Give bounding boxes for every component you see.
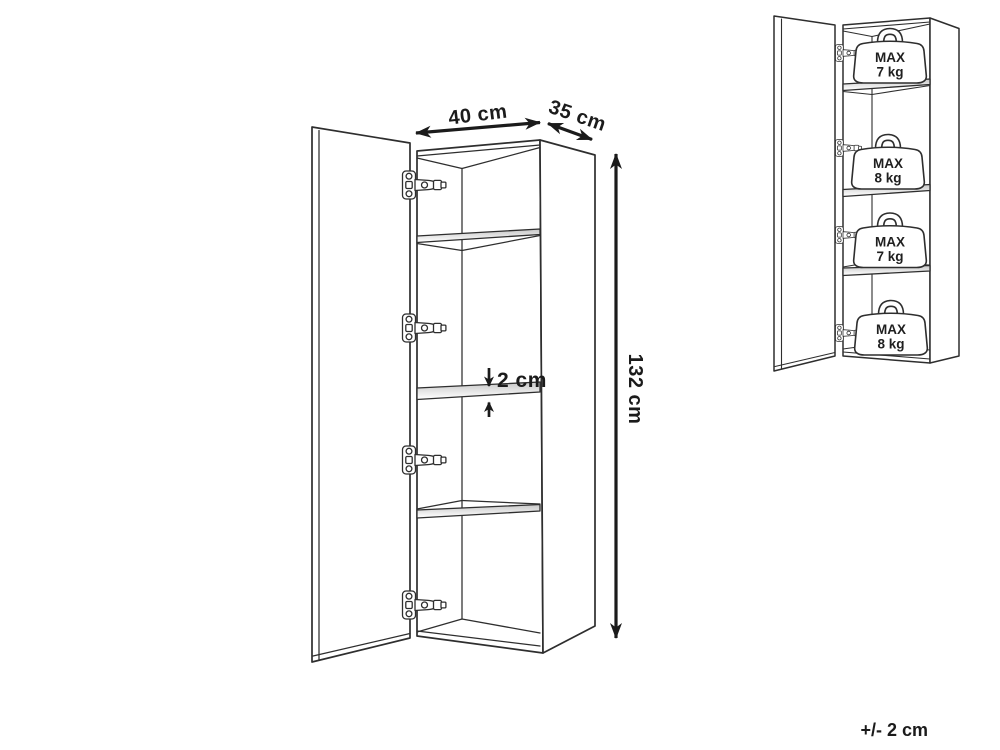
cabinet-side-panel bbox=[540, 140, 595, 653]
cabinet-dimension-diagram: 40 cm 35 cm 132 cm 2 cm bbox=[0, 0, 1000, 750]
tolerance-note: +/- 2 cm bbox=[860, 720, 928, 740]
weight-max-label: MAX bbox=[875, 50, 905, 65]
depth-dimension: 35 cm bbox=[546, 96, 609, 139]
weight-value-label: 8 kg bbox=[874, 171, 901, 186]
weight-max-label: MAX bbox=[875, 235, 905, 250]
diagram-canvas: 40 cm 35 cm 132 cm 2 cm bbox=[0, 0, 1000, 750]
weight-max-label: MAX bbox=[873, 156, 903, 171]
weight-value-label: 7 kg bbox=[876, 65, 903, 80]
weight-max-label: MAX bbox=[876, 322, 906, 337]
depth-dimension-label: 35 cm bbox=[546, 96, 609, 136]
height-dimension: 132 cm bbox=[616, 154, 646, 638]
shelf-thickness-label: 2 cm bbox=[497, 369, 547, 392]
width-dimension: 40 cm bbox=[416, 100, 540, 133]
height-dimension-label: 132 cm bbox=[624, 354, 646, 425]
cabinet-door bbox=[774, 16, 835, 371]
weight-value-label: 8 kg bbox=[877, 337, 904, 352]
load-cabinet-diagram: MAX 7 kg MAX 8 kg MAX 7 kg MAX 8 kg bbox=[774, 16, 959, 371]
cabinet-door bbox=[312, 127, 410, 662]
cabinet-side-panel bbox=[930, 18, 959, 363]
main-cabinet-diagram: 40 cm 35 cm 132 cm 2 cm bbox=[312, 96, 646, 662]
weight-value-label: 7 kg bbox=[876, 249, 903, 264]
